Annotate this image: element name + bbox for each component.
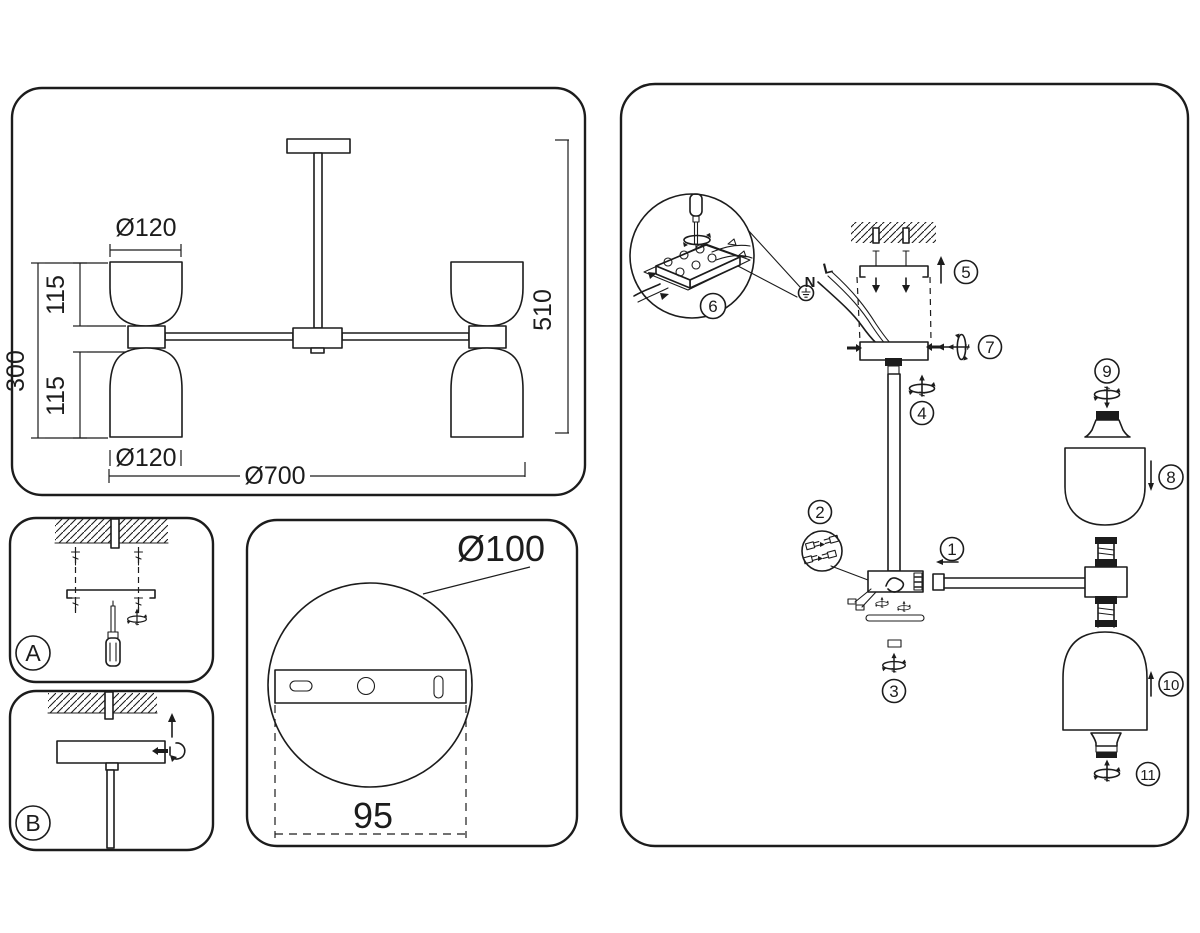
overall-height-label: 510 bbox=[529, 289, 557, 331]
stem bbox=[314, 153, 322, 328]
dimension-top-diameter: Ø120 bbox=[110, 214, 181, 257]
lower-height-label: 115 bbox=[42, 376, 70, 416]
instruction-drawing: Ø120 115 115 300 bbox=[0, 0, 1200, 933]
part-1-label: 1 bbox=[947, 540, 956, 559]
step-b-label: B bbox=[25, 810, 40, 836]
mount-detail-panel: Ø100 95 bbox=[247, 520, 577, 846]
dimension-bottom-diameter: Ø120 bbox=[110, 444, 181, 472]
part-8-label: 8 bbox=[1166, 468, 1175, 487]
step-b-panel: B bbox=[10, 691, 213, 850]
hole-spacing-label: 95 bbox=[353, 795, 393, 836]
assembly-panel: 6 N L 5 bbox=[621, 84, 1188, 846]
part-7-label: 7 bbox=[985, 338, 994, 357]
stem-rod bbox=[888, 374, 900, 571]
lower-shade bbox=[1063, 632, 1147, 730]
step-b-marker: B bbox=[16, 806, 50, 840]
overview-panel: Ø120 115 115 300 bbox=[2, 88, 585, 495]
bottom-diameter-label: Ø120 bbox=[115, 444, 176, 472]
upper-height-label: 115 bbox=[42, 275, 70, 315]
part-6-label: 6 bbox=[708, 297, 717, 316]
part-9-label: 9 bbox=[1102, 362, 1111, 381]
part-11-label: 11 bbox=[1140, 767, 1156, 784]
instruction-sheet: Ø120 115 115 300 bbox=[0, 0, 1200, 933]
top-diameter-label: Ø120 bbox=[115, 214, 176, 242]
part-marker-6: 6 bbox=[701, 294, 726, 319]
ceiling-plate bbox=[287, 139, 350, 153]
step-a-label: A bbox=[25, 640, 41, 666]
part-2-label: 2 bbox=[815, 503, 824, 522]
part-10-label: 10 bbox=[1163, 677, 1180, 694]
part-4-label: 4 bbox=[917, 404, 926, 423]
part-3-label: 3 bbox=[889, 682, 898, 701]
overall-width-label: Ø700 bbox=[244, 462, 305, 490]
part-marker-2: 2 bbox=[809, 501, 832, 524]
step-a-marker: A bbox=[16, 636, 50, 670]
part-5-label: 5 bbox=[961, 263, 970, 282]
plate-diameter-label: Ø100 bbox=[457, 528, 545, 569]
body-height-label: 300 bbox=[2, 350, 30, 392]
upper-shade bbox=[1065, 448, 1145, 525]
mounting-bar bbox=[275, 670, 466, 703]
step-a-panel: A bbox=[10, 518, 213, 682]
ceiling-hatch bbox=[851, 222, 936, 243]
cable-grip bbox=[885, 358, 902, 366]
